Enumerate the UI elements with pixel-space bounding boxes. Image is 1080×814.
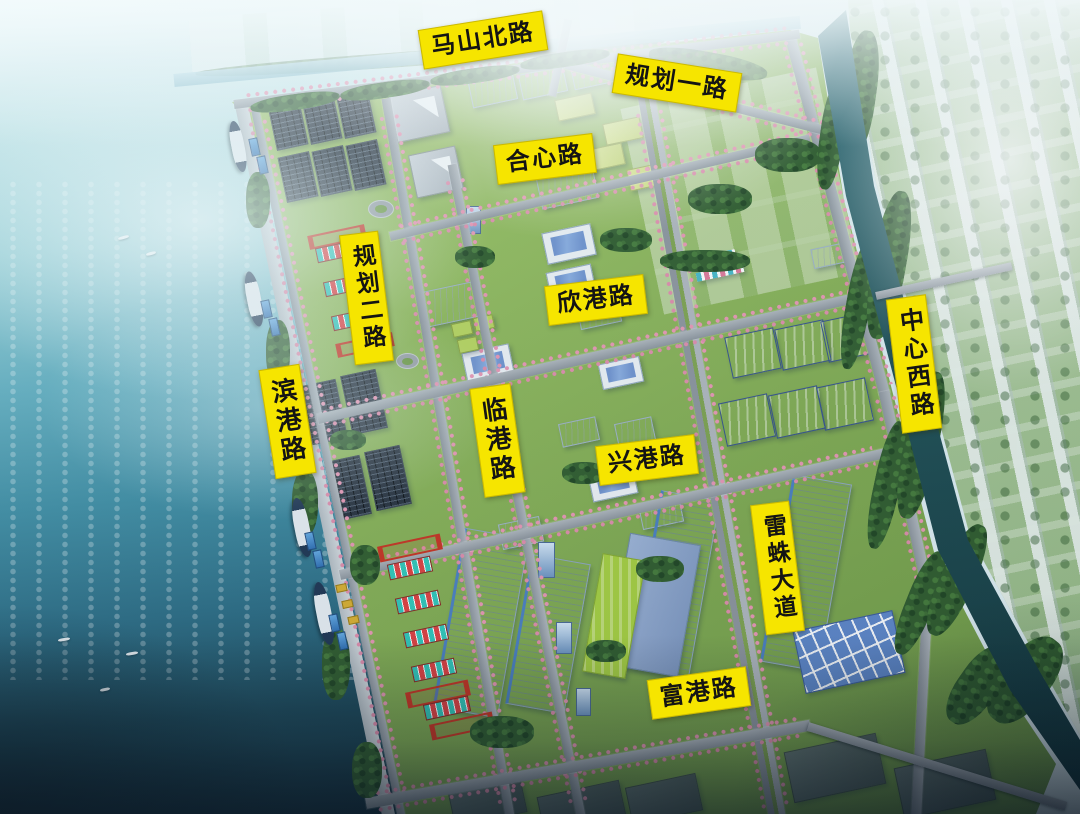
tree-cluster (586, 640, 626, 662)
tree-cluster (470, 716, 534, 748)
tree-cluster (688, 184, 752, 214)
tree-cluster (600, 228, 652, 252)
tree-cluster (455, 246, 495, 268)
tree-cluster (330, 430, 366, 450)
roundabout (396, 353, 419, 369)
tree-cluster (352, 742, 382, 798)
tree-cluster (350, 545, 380, 585)
tree-cluster (246, 172, 270, 228)
aerial-masterplan-rendering: 马山北路 规划一路 合心路 规划二路 欣港路 中心西路 滨港路 临港路 兴港路 … (0, 0, 1080, 814)
tree-cluster (660, 250, 750, 272)
tower-building (576, 688, 591, 716)
roundabout (368, 200, 394, 218)
tree-cluster (636, 556, 684, 582)
tower-building (556, 622, 572, 654)
tree-cluster (755, 138, 821, 172)
